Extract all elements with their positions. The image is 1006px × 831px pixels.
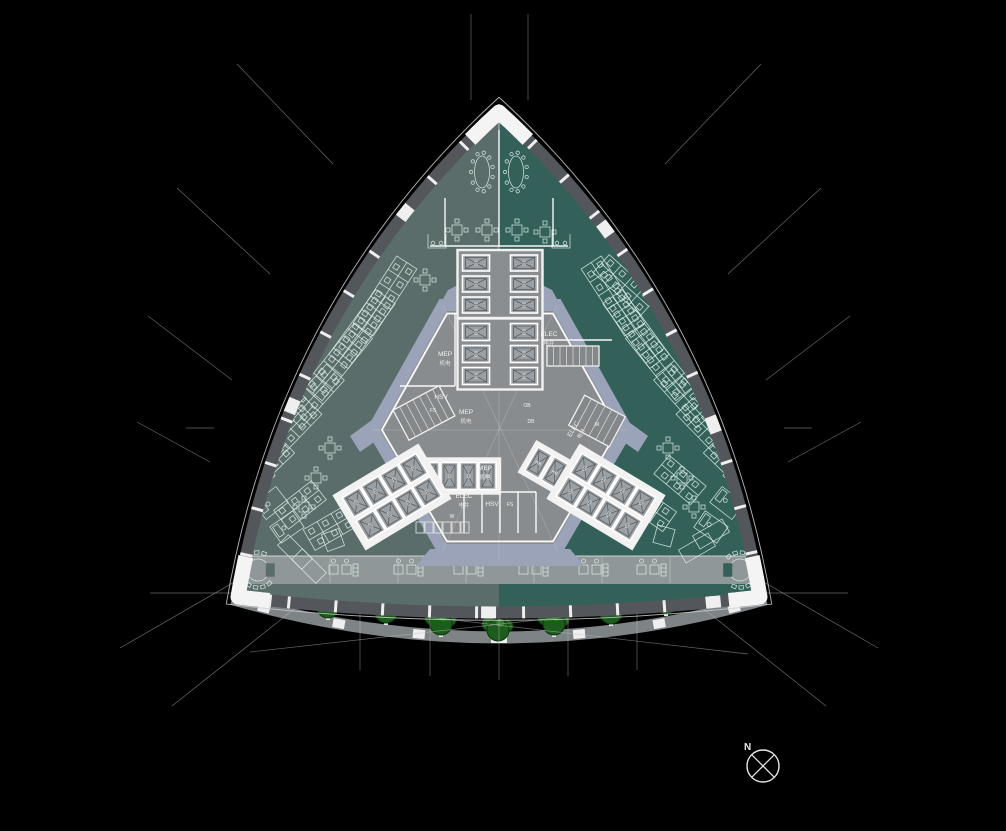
perimeter-office <box>666 239 699 273</box>
desk <box>636 199 649 211</box>
perimeter-office <box>611 176 643 210</box>
elevator-cell-label: 2C <box>521 302 526 309</box>
perimeter-office <box>229 432 263 466</box>
office-wall <box>592 157 623 191</box>
desk <box>377 175 390 186</box>
perimeter-office <box>300 239 333 273</box>
floor-plan-canvas: 2C2C2C2C2C2CSOSOSOSOSOSO24242424HBHBHBHB… <box>0 0 1006 831</box>
chair <box>328 233 334 239</box>
dimension-line <box>177 188 270 274</box>
desk <box>671 242 684 254</box>
dimension-line <box>148 316 232 380</box>
desk <box>617 179 630 190</box>
office-wall <box>649 217 682 251</box>
core-room-label: W <box>450 514 455 520</box>
chair <box>740 463 747 470</box>
office-wall <box>374 157 405 191</box>
office-wall <box>735 432 769 466</box>
elevator-cell-label: SO <box>521 373 526 380</box>
chair <box>661 228 667 234</box>
core-label-text: ELEC <box>456 493 473 500</box>
desk <box>655 220 668 232</box>
desk <box>599 160 612 171</box>
desk <box>319 234 332 246</box>
desk <box>358 194 371 205</box>
core-label-subtext: 电井 <box>458 501 470 509</box>
north-label: N <box>744 742 751 753</box>
chair <box>366 192 372 198</box>
desk <box>232 447 244 460</box>
chair <box>347 212 353 218</box>
core-room-label: M <box>595 422 599 428</box>
walkway-paving-mark <box>413 629 426 639</box>
elevator-cell-label: SO <box>521 329 526 336</box>
elevator-cell-label: SO <box>473 373 478 380</box>
perimeter-office <box>735 432 769 466</box>
elevator-cell-label: SO <box>521 351 526 358</box>
chair <box>311 255 317 261</box>
office-wall <box>229 432 263 466</box>
core-label-text: M <box>595 422 599 428</box>
dimension-line <box>700 606 826 706</box>
core-label-subtext: 机电 <box>439 359 451 367</box>
core-room-label: FS <box>430 408 437 414</box>
elevator-cell-label: SO <box>473 329 478 336</box>
stair <box>547 346 599 366</box>
desk <box>740 435 752 448</box>
core-label-text: MEP <box>438 351 452 358</box>
perimeter-office <box>649 217 682 251</box>
office-wall <box>355 176 387 210</box>
core-label-text: FS <box>507 502 514 508</box>
perimeter-office <box>374 157 405 191</box>
core-label-subtext: 机电 <box>460 417 472 425</box>
core-label-text: DB <box>528 419 536 425</box>
chair <box>678 250 684 256</box>
core-label-subtext: 电井 <box>543 339 555 347</box>
elevator-bank: SOSOSOSOSOSO <box>458 319 543 390</box>
dimension-line <box>172 606 298 706</box>
core-label-text: OB <box>523 403 531 409</box>
core-room-label: DB <box>528 419 536 425</box>
elevator-cell-label: SO <box>473 351 478 358</box>
dimension-line <box>237 64 333 164</box>
elevator-cell-label: 2C <box>521 260 526 267</box>
core-label-text: FS <box>430 408 437 414</box>
core-room-label: HSV <box>434 394 448 401</box>
perimeter-office <box>630 196 662 230</box>
core-room-label: FS <box>507 502 514 508</box>
dimension-line <box>665 64 761 164</box>
elevator-cell-label: 24 <box>447 473 452 479</box>
elevator-cell-label: 2C <box>473 281 478 288</box>
core-room-label: OB <box>523 403 531 409</box>
core-label-text: MEP <box>459 409 473 416</box>
floor-plan-svg: 2C2C2C2C2C2CSOSOSOSOSOSO24242424HBHBHBHB… <box>0 0 1006 831</box>
perimeter-office <box>592 157 623 191</box>
core-label-text: MEP <box>478 465 492 472</box>
chair <box>385 173 390 178</box>
core-label-subtext: 机电 <box>479 473 491 481</box>
chair <box>605 168 610 173</box>
chair <box>240 447 246 453</box>
elevator-cell-label: 24 <box>466 473 471 479</box>
chair <box>248 465 255 472</box>
chair <box>624 187 630 193</box>
core-label-text: HSV <box>485 501 499 508</box>
office-wall <box>300 239 333 273</box>
office-wall <box>666 239 699 273</box>
core-label-text: W <box>450 514 455 520</box>
chair <box>642 207 648 213</box>
office-wall <box>611 176 643 210</box>
core-label-text: HSV <box>434 394 448 401</box>
elevator-bank: 2C2C2C2C2C2C <box>458 250 543 318</box>
office-wall <box>630 196 662 230</box>
dimension-line <box>728 188 821 274</box>
core-room-label: HSV <box>485 501 499 508</box>
desk <box>302 256 315 268</box>
office-wall <box>317 217 350 251</box>
elevator-cell-label: 2C <box>521 281 526 288</box>
perimeter-office <box>336 196 368 230</box>
dimension-line <box>766 316 850 380</box>
north-arrow: N <box>744 742 779 782</box>
core-label-text: ELEC <box>541 331 558 338</box>
perimeter-office <box>355 176 387 210</box>
elevator-cell-label: 2C <box>473 260 478 267</box>
perimeter-office <box>317 217 350 251</box>
office-wall <box>336 196 368 230</box>
desk <box>339 214 352 226</box>
chair <box>748 443 754 449</box>
elevator-cell-label: 2C <box>473 302 478 309</box>
